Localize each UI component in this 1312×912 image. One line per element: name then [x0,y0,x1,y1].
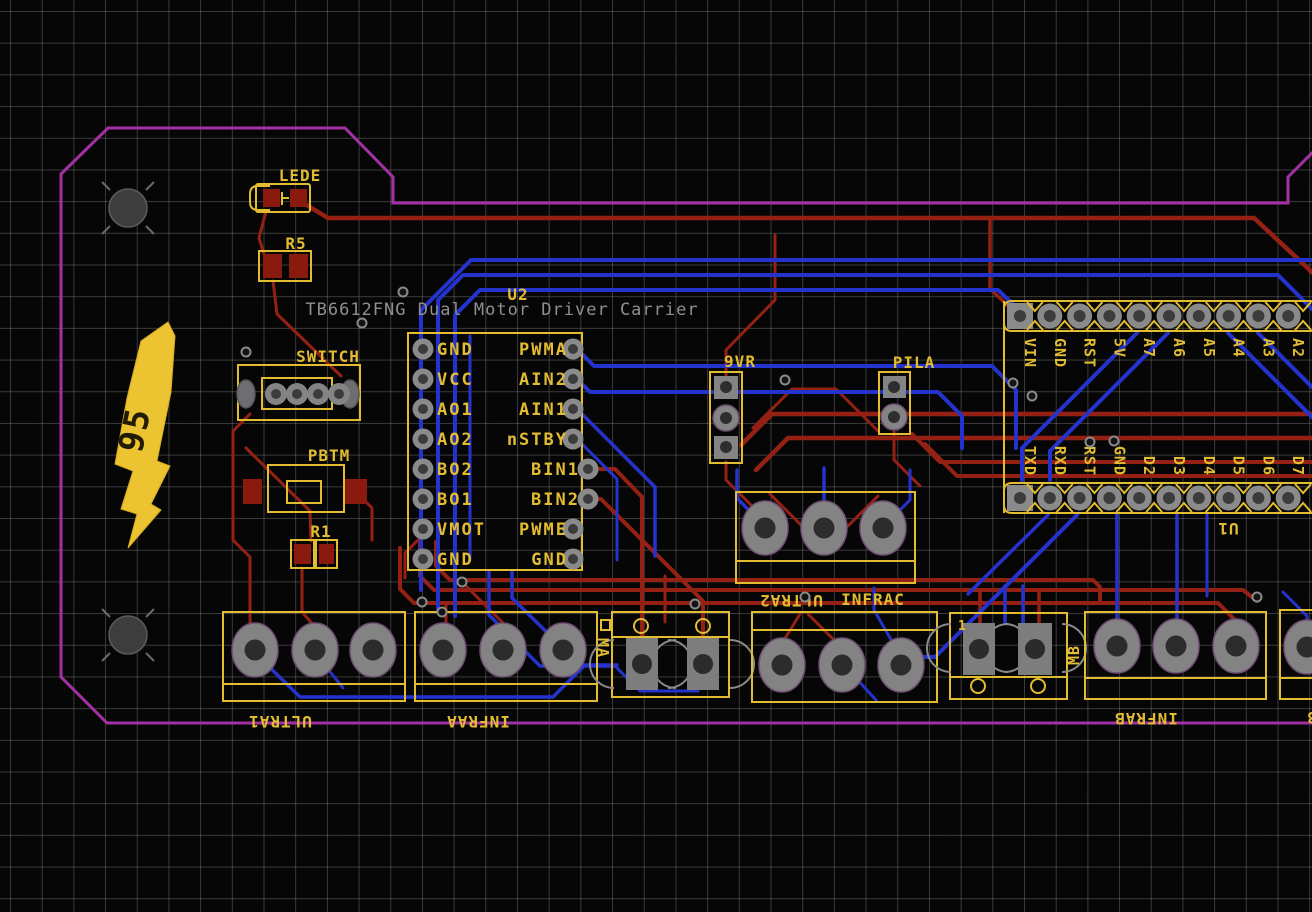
u1-pin-label: VIN [1021,338,1039,368]
component-ultra3[interactable]: ULTRA3 [1280,610,1312,727]
component-pbtm[interactable]: PBTM [243,446,367,512]
u1-pin-label: A6 [1170,338,1188,358]
via[interactable] [458,578,467,587]
u2-pin-label: BO2 [437,460,474,480]
component-ma[interactable]: MA [590,612,754,697]
u1-header-bottom: TXDRXDRSTGNDD2D3D4D5D6D7 [1007,446,1311,512]
via[interactable] [1086,438,1095,447]
u1-pin-label: D2 [1140,456,1158,476]
ref-infraa: INFRAA [446,712,510,731]
u1-pin-label: TXD [1021,446,1039,476]
u2-pin-label: VMOT [437,520,486,540]
pcb-drawing[interactable]: 95 [0,0,1312,912]
component-lede[interactable]: LEDE [250,166,321,212]
via[interactable] [242,348,251,357]
pcb-editor-canvas[interactable]: 95 [0,0,1312,912]
via[interactable] [1110,437,1119,446]
led-symbol [282,192,289,205]
u2-pin-label: PWMA [519,340,568,360]
u1-pin-label: A5 [1200,338,1218,358]
pin1-mark: 1 [958,619,967,634]
u1-pin-label: RXD [1051,446,1069,476]
pad [319,544,334,564]
ref-ultra2: ULTRA2 [759,591,823,610]
u1-pin-label: D3 [1170,456,1188,476]
u2-pin-label: GND [531,550,568,570]
u2-pin-label: GND [437,550,474,570]
via[interactable] [691,600,700,609]
ref-infrab: INFRAB [1114,709,1178,728]
u1-pin-label: A4 [1230,338,1248,358]
u1-pin-label: GND [1051,338,1069,368]
ref-ultra3: ULTRA3 [1306,708,1312,727]
u1-pin-label: D7 [1289,456,1307,476]
ref-switch: SWITCH [296,347,360,366]
pad [243,479,262,504]
ref-u1: U1 [1217,519,1238,538]
component-mb[interactable]: 1 MB [927,613,1086,699]
u1-pin-label: GND [1110,446,1128,476]
u1-pin-label: A3 [1259,338,1277,358]
component-ultra1[interactable]: ULTRA1 [223,612,405,731]
via[interactable] [358,319,367,328]
ref-ma: MA [594,638,612,658]
component-switch[interactable]: SWITCH [237,347,360,420]
u1-pin-label: D5 [1230,456,1248,476]
ref-mb: MB [1065,645,1083,665]
u1-header-top: VINGNDRST5VA7A6A5A4A3A2 [1007,302,1311,368]
u2-pin-label: PWME [519,520,568,540]
u2-pin-label: AIN1 [519,400,568,420]
via[interactable] [781,376,790,385]
u2-pin-label: GND [437,340,474,360]
mounting-hole-bottom[interactable] [102,609,154,661]
component-infraa[interactable]: INFRAA [415,612,597,731]
u1-pin-label: RST [1081,338,1099,368]
u1-pin-label: 5V [1110,338,1128,358]
u2-pin-label: BO1 [437,490,474,510]
u2-pin-label: AIN2 [519,370,568,390]
u2-pin-label: BIN1 [531,460,580,480]
u1-pin-label: D4 [1200,456,1218,476]
u2-pin-label: BIN2 [531,490,580,510]
via[interactable] [1009,379,1018,388]
via[interactable] [438,608,447,617]
pad [263,254,282,278]
vias [242,288,1262,617]
pad [290,189,307,207]
ref-pbtm: PBTM [308,446,351,465]
switch-pads [265,383,350,405]
component-r5[interactable]: R5 [259,234,311,281]
pad [294,544,311,564]
fab-note: TB6612FNG Dual Motor Driver Carrier [305,300,698,320]
u2-pin-label: nSTBY [507,430,568,450]
u2-pin-label: AO2 [437,430,474,450]
lightning-logo: 95 [111,322,175,548]
component-9vr[interactable]: 9VR [710,352,756,463]
u2-pin-label: AO1 [437,400,474,420]
via[interactable] [399,288,408,297]
pad [345,479,367,504]
pad [237,380,255,408]
via[interactable] [1028,392,1037,401]
via[interactable] [418,598,427,607]
u1-pin-label: A7 [1140,338,1158,358]
pad [289,254,308,278]
u2-pins: GNDPWMAVCCAIN2AO1AIN1AO2nSTBYBO2BIN1BO1B… [413,339,599,571]
via[interactable] [801,593,810,602]
ref-r1: R1 [310,522,331,541]
u1-pin-label: D6 [1259,456,1277,476]
ref-lede: LEDE [279,166,322,185]
mounting-hole-top[interactable] [102,182,154,234]
ref-ultra1: ULTRA1 [248,712,312,731]
component-r1[interactable]: R1 [291,522,337,568]
u1-pin-label: A2 [1289,338,1307,358]
via[interactable] [1253,593,1262,602]
pad [263,189,280,207]
ref-infrac: INFRAC [841,590,905,609]
component-infrab[interactable]: INFRAB [1085,612,1266,728]
ref-pila: PILA [893,353,936,372]
u1-pin-label: RST [1081,446,1099,476]
u2-pin-label: VCC [437,370,474,390]
ref-r5: R5 [285,234,306,253]
ref-9vr: 9VR [724,352,756,371]
